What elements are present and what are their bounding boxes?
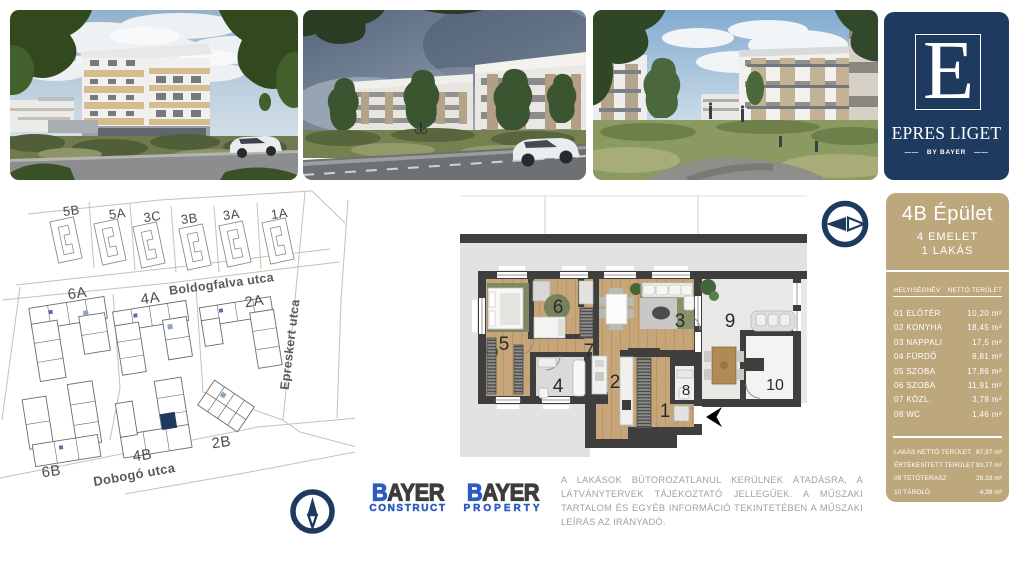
svg-text:4B: 4B bbox=[132, 446, 154, 466]
svg-text:6: 6 bbox=[553, 297, 564, 318]
svg-text:9: 9 bbox=[725, 311, 736, 332]
svg-text:3: 3 bbox=[675, 311, 686, 332]
svg-text:1A: 1A bbox=[270, 205, 289, 222]
svg-text:5A: 5A bbox=[108, 205, 127, 222]
svg-text:6A: 6A bbox=[67, 284, 89, 304]
svg-text:6B: 6B bbox=[41, 462, 63, 482]
svg-text:4A: 4A bbox=[140, 289, 162, 309]
svg-text:5: 5 bbox=[499, 334, 510, 355]
svg-text:4: 4 bbox=[553, 376, 564, 397]
svg-text:10: 10 bbox=[766, 377, 784, 394]
svg-text:2A: 2A bbox=[244, 292, 266, 312]
svg-text:8: 8 bbox=[682, 382, 690, 399]
svg-text:3A: 3A bbox=[222, 206, 241, 223]
svg-text:2: 2 bbox=[610, 372, 621, 393]
svg-text:2B: 2B bbox=[211, 433, 233, 453]
svg-text:1: 1 bbox=[660, 401, 671, 422]
svg-text:3C: 3C bbox=[143, 208, 163, 225]
svg-text:3B: 3B bbox=[180, 210, 199, 227]
svg-text:Epreskert utca: Epreskert utca bbox=[278, 298, 303, 391]
svg-text:5B: 5B bbox=[62, 202, 81, 219]
svg-text:7: 7 bbox=[584, 341, 595, 362]
